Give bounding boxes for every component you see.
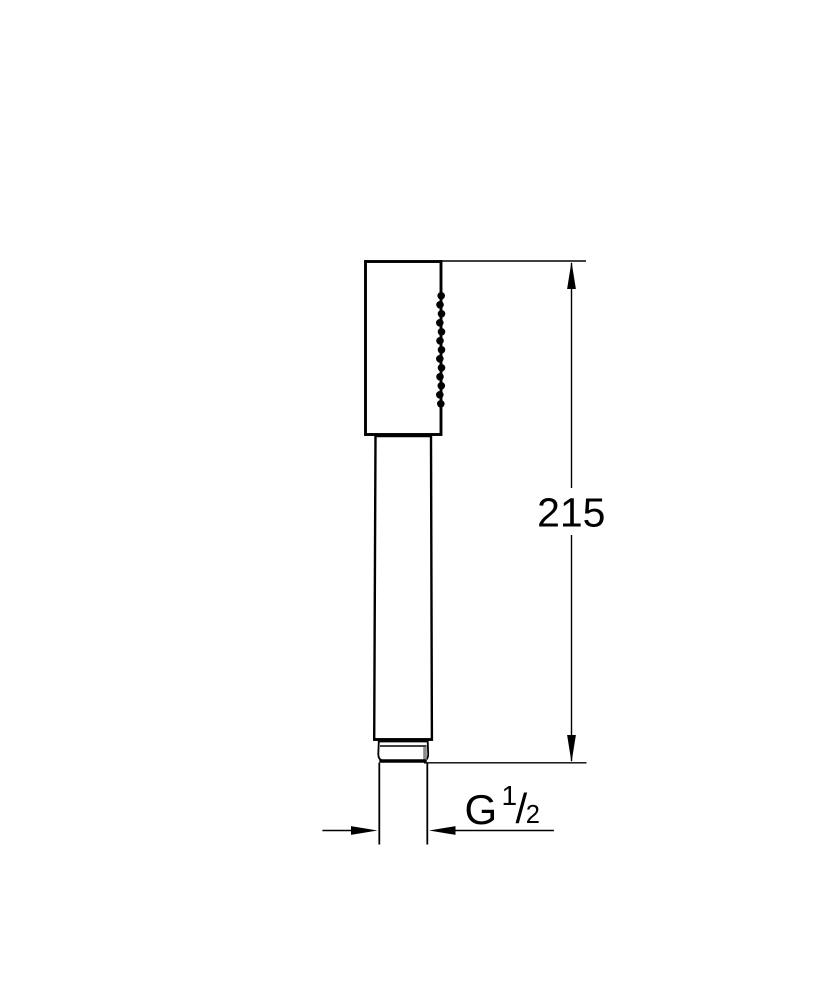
svg-text:2: 2 — [526, 801, 540, 829]
svg-text:G: G — [465, 786, 498, 833]
svg-text:215: 215 — [537, 490, 605, 536]
